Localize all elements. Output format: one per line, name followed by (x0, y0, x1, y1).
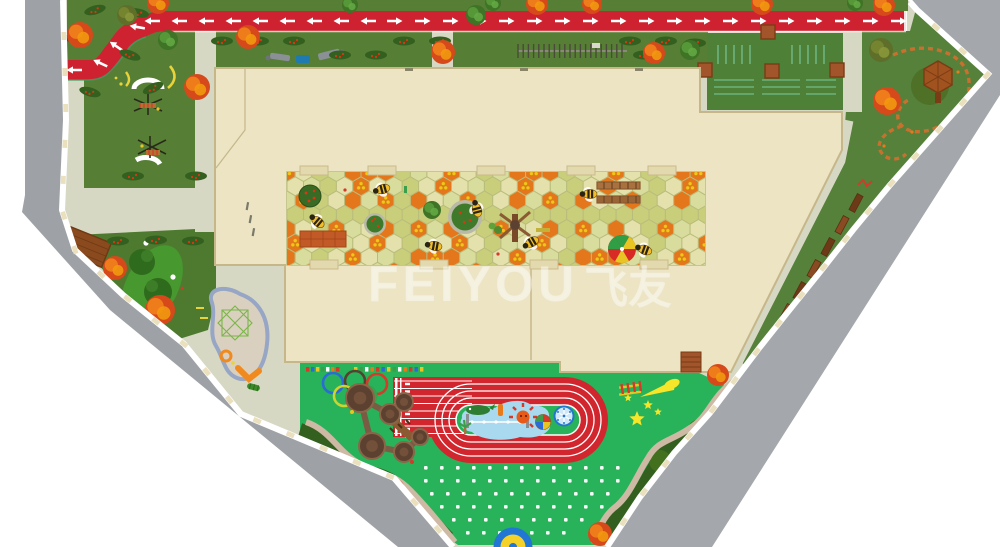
surface-dot (520, 505, 524, 509)
hedge-bush (211, 37, 233, 46)
flower-dots (441, 182, 445, 186)
start-mark (405, 383, 410, 385)
entrance-tab (310, 260, 338, 269)
flower-dots (678, 257, 682, 261)
bead (420, 367, 423, 372)
surface-dot (440, 466, 444, 470)
surface-dot (568, 466, 572, 470)
surface-dot (472, 479, 476, 483)
sidewalk-tick (61, 176, 66, 184)
bead (393, 367, 396, 372)
surface-dot (616, 466, 620, 470)
flower-dots (543, 243, 547, 247)
bead (404, 367, 407, 372)
parasol (608, 235, 636, 263)
surface-dot (532, 518, 536, 522)
surface-dot (488, 505, 492, 509)
bead (415, 367, 418, 372)
flower-dots (357, 186, 361, 190)
hedge-bush (107, 237, 129, 246)
hedge-bush (393, 37, 415, 46)
bead (371, 367, 374, 372)
surface-dot (504, 466, 508, 470)
surface-dot (580, 518, 584, 522)
flower-dots (293, 239, 297, 243)
surface-dot (552, 505, 556, 509)
surface-dot (494, 492, 498, 496)
surface-dot (488, 479, 492, 483)
olive-tree (869, 38, 893, 62)
flower-dots (581, 225, 585, 229)
bead (331, 367, 334, 372)
surface-dot (484, 518, 488, 522)
surface-dot (424, 479, 428, 483)
surface-dot (456, 479, 460, 483)
entrance-tab (530, 260, 558, 269)
flower-dots (664, 225, 668, 229)
flower-dots (666, 229, 670, 233)
surface-dot (536, 479, 540, 483)
sidewalk-tick (63, 104, 68, 112)
flower-dots (359, 182, 363, 186)
surface-dot (478, 492, 482, 496)
surface-dot (472, 505, 476, 509)
flower-dots (288, 172, 292, 176)
surface-dot (552, 466, 556, 470)
surface-dot (468, 518, 472, 522)
surface-dot (482, 531, 486, 535)
red-autumn-tree (236, 25, 260, 49)
flower-dots (534, 172, 538, 176)
surface-dot (504, 479, 508, 483)
flower-dots (376, 239, 380, 243)
flower-dots (524, 182, 528, 186)
site-plan-render (0, 0, 1000, 547)
red-autumn-tree (67, 22, 93, 48)
flower-dots (546, 200, 550, 204)
sidewalk-tick (61, 32, 66, 40)
brick-bench (300, 231, 346, 247)
flower-dots (680, 253, 684, 257)
surface-dot (568, 505, 572, 509)
entrance-tab (567, 166, 595, 175)
surface-dot (584, 479, 588, 483)
bead (336, 367, 339, 372)
flower-dots (439, 186, 443, 190)
surface-dot (564, 518, 568, 522)
sidewalk-tick (62, 140, 67, 148)
hedge-bush (145, 236, 167, 245)
flower-dots (455, 243, 459, 247)
hedge-bush (283, 37, 305, 46)
flower-dots (296, 243, 300, 247)
flower-dots (579, 229, 583, 233)
planter-box (830, 63, 844, 77)
surface-dot (584, 505, 588, 509)
surface-dot (424, 466, 428, 470)
flower-dots (417, 225, 421, 229)
green-tree (158, 30, 178, 50)
surface-dot (440, 505, 444, 509)
surface-dot (590, 492, 594, 496)
flower-dots (386, 200, 390, 204)
surface-dot (500, 518, 504, 522)
flower-dots (682, 257, 686, 261)
sidewalk-tick (62, 68, 67, 76)
flower-dots (414, 229, 418, 233)
surface-dot (574, 492, 578, 496)
entrance-tab (648, 166, 676, 175)
red-autumn-tree (643, 42, 665, 64)
flower-dots (691, 186, 695, 190)
flower-dots (334, 225, 338, 229)
surface-dot (516, 518, 520, 522)
surface-dot (536, 505, 540, 509)
snowflake-pad (555, 407, 574, 426)
flower-dots (526, 186, 530, 190)
flower-dots (612, 172, 616, 176)
surface-dot (546, 531, 550, 535)
surface-dot (520, 466, 524, 470)
olive-tree (117, 5, 137, 25)
cone-toy (498, 404, 503, 416)
surface-dot (440, 479, 444, 483)
surface-dot (536, 466, 540, 470)
surface-dot (558, 492, 562, 496)
flower-dots (540, 239, 544, 243)
grass-top-strip (140, 0, 908, 11)
hedge-bush (182, 237, 204, 246)
bead (382, 367, 385, 372)
surface-dot (504, 505, 508, 509)
berry-bush (299, 185, 321, 207)
flower-dots (513, 257, 517, 261)
red-autumn-tree (707, 364, 729, 386)
target-circle (497, 531, 529, 547)
surface-dot (430, 492, 434, 496)
flower-dots (515, 253, 519, 257)
bead (365, 367, 368, 372)
flower-dots (447, 172, 451, 176)
surface-dot (568, 479, 572, 483)
bead (376, 367, 379, 372)
surface-dot (520, 479, 524, 483)
hedge-bush (619, 37, 641, 46)
surface-dot (526, 492, 530, 496)
surface-dot (530, 531, 534, 535)
hedge-bush (185, 172, 207, 181)
flower-dots (501, 229, 505, 233)
bead (311, 367, 314, 372)
start-mark (405, 413, 410, 415)
surface-dot (456, 466, 460, 470)
surface-dot (548, 518, 552, 522)
flower-dots (444, 186, 448, 190)
flower-dots (686, 186, 690, 190)
surface-dot (600, 466, 604, 470)
planter-box (761, 25, 775, 39)
flower-dots (419, 229, 423, 233)
surface-dot (456, 505, 460, 509)
entrance-tab (477, 166, 505, 175)
flower-dots (466, 196, 470, 200)
green-tree (423, 201, 441, 219)
building-stairs (681, 352, 701, 372)
flower-dots (688, 182, 692, 186)
bead (326, 367, 329, 372)
surface-dot (600, 505, 604, 509)
flower-dots (452, 172, 456, 176)
site-plan-stage: FEIYOU 飞友 (0, 0, 1000, 547)
beach-ball (536, 415, 551, 430)
flower-dots (699, 172, 703, 176)
flower-dots (353, 257, 357, 261)
flower-dots (538, 243, 542, 247)
bead (409, 367, 412, 372)
surface-dot (488, 466, 492, 470)
flower-dots (378, 243, 382, 247)
surface-dot (584, 466, 588, 470)
flower-dots (291, 243, 295, 247)
surface-dot (600, 479, 604, 483)
flower-dots (598, 253, 602, 257)
bead (306, 367, 309, 372)
flower-dots (551, 200, 555, 204)
hedge-bush (122, 172, 144, 181)
surface-dot (510, 492, 514, 496)
grass-road-south-strip (216, 31, 708, 68)
bead (398, 367, 401, 372)
surface-dot (452, 518, 456, 522)
surface-dot (466, 531, 470, 535)
hedge-bush (365, 51, 387, 60)
surface-dot (606, 492, 610, 496)
flower-dots (362, 186, 366, 190)
entrance-tab (420, 260, 448, 269)
flower-dots (600, 257, 604, 261)
green-tree (680, 40, 700, 60)
surface-dot (472, 466, 476, 470)
bead (387, 367, 390, 372)
bead (316, 367, 319, 372)
entrance-tab (640, 260, 668, 269)
red-autumn-tree (184, 74, 210, 100)
flower-dots (373, 243, 377, 247)
planter-box (765, 64, 779, 78)
flower-dots (351, 253, 355, 257)
entrance-tab (300, 166, 328, 175)
flower-dots (381, 200, 385, 204)
flower-dots (458, 239, 462, 243)
flower-dots (349, 257, 353, 261)
flower-dots (595, 257, 599, 261)
flower-dots (530, 172, 534, 176)
red-autumn-tree (873, 87, 901, 115)
red-autumn-tree (431, 40, 455, 64)
flower-dots (617, 172, 621, 176)
flower-dots (584, 229, 588, 233)
surface-dot (562, 531, 566, 535)
flower-dots (460, 243, 464, 247)
flower-dots (694, 172, 698, 176)
green-tree (466, 5, 486, 25)
surface-dot (552, 479, 556, 483)
flower-dots (518, 257, 522, 261)
hedge-bush (329, 51, 351, 60)
surface-dot (446, 492, 450, 496)
surface-dot (462, 492, 466, 496)
surface-dot (542, 492, 546, 496)
flower-dots (661, 229, 665, 233)
entrance-tab (368, 166, 396, 175)
flower-dots (521, 186, 525, 190)
bead (321, 367, 324, 372)
flower-dots (548, 196, 552, 200)
surface-dot (616, 479, 620, 483)
